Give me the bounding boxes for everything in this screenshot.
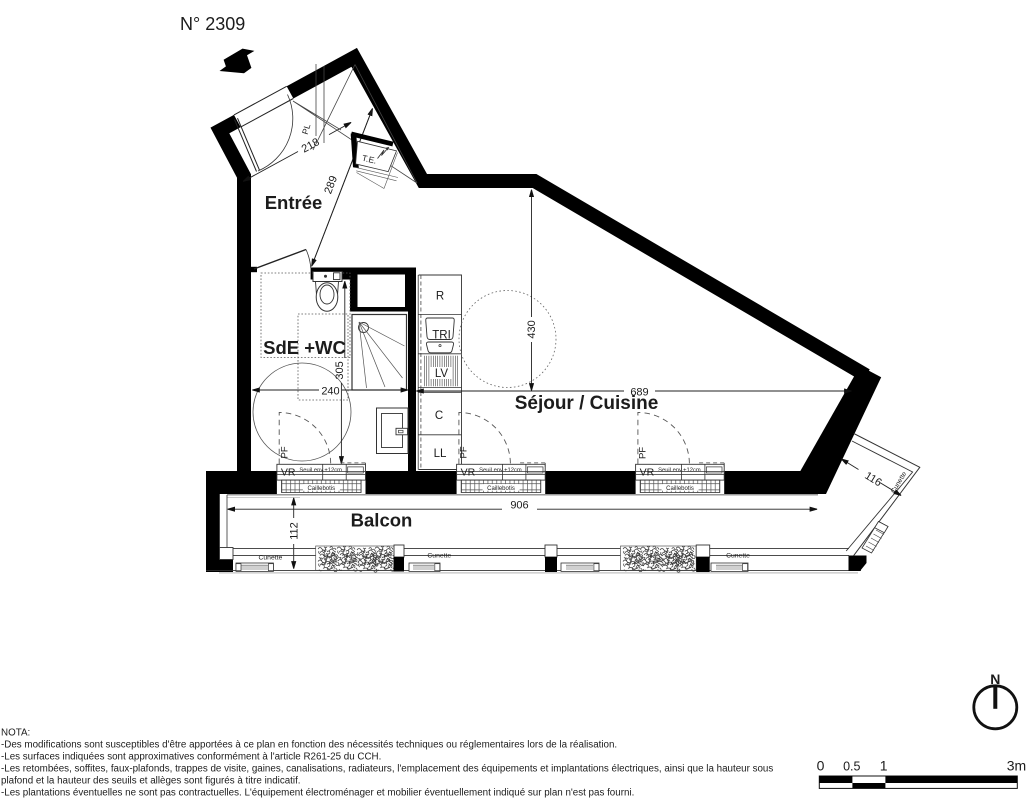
svg-text:-Des modifications sont suscep: -Des modifications sont susceptibles d'ê…	[1, 740, 617, 751]
svg-text:-Les surfaces indiquées sont a: -Les surfaces indiquées sont approximati…	[1, 752, 381, 763]
svg-text:112: 112	[289, 522, 301, 540]
svg-text:430: 430	[526, 320, 538, 338]
svg-text:1: 1	[880, 758, 888, 774]
svg-text:305: 305	[334, 361, 346, 379]
svg-text:LV: LV	[435, 368, 449, 380]
svg-text:N° 2309: N° 2309	[180, 14, 245, 34]
svg-text:3m: 3m	[1007, 758, 1026, 774]
svg-text:-Les retombées, soffites, faux: -Les retombées, soffites, faux-plafonds,…	[1, 764, 773, 775]
svg-text:NOTA:: NOTA:	[1, 728, 30, 739]
svg-text:PF: PF	[280, 446, 291, 458]
svg-text:PF: PF	[459, 446, 470, 458]
svg-text:-Les plantations éventuelles n: -Les plantations éventuelles ne sont pas…	[1, 788, 634, 799]
svg-text:TRI: TRI	[432, 330, 451, 342]
svg-text:Cunette: Cunette	[427, 553, 451, 560]
svg-text:Balcon: Balcon	[351, 510, 413, 531]
svg-text:PF: PF	[638, 447, 649, 459]
svg-text:N: N	[990, 671, 1000, 687]
svg-text:SdE +WC: SdE +WC	[263, 337, 346, 358]
svg-text:Cunette: Cunette	[258, 554, 282, 561]
svg-text:Entrée: Entrée	[265, 192, 323, 213]
svg-text:C: C	[435, 410, 443, 422]
svg-text:0.5: 0.5	[843, 760, 860, 774]
svg-text:Cunette: Cunette	[726, 553, 750, 560]
svg-text:240: 240	[321, 385, 339, 397]
svg-text:plafond et la hauteur des seui: plafond et la hauteur des seuils et allè…	[1, 776, 301, 787]
svg-text:906: 906	[510, 500, 528, 512]
svg-text:LL: LL	[434, 448, 447, 460]
svg-text:0: 0	[817, 758, 825, 774]
svg-text:R: R	[436, 291, 444, 303]
svg-text:689: 689	[630, 386, 648, 398]
